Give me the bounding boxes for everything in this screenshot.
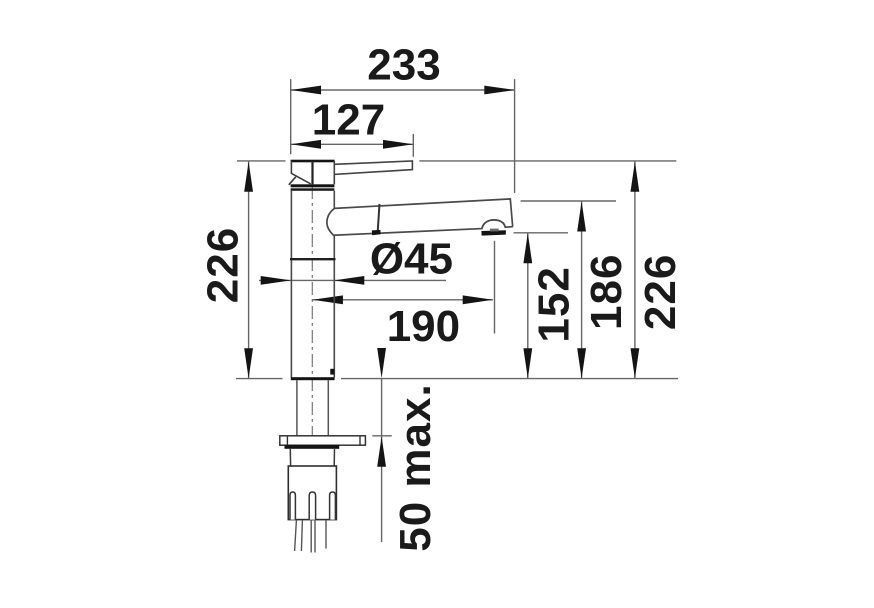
svg-text:127: 127 (312, 95, 385, 144)
svg-text:226: 226 (636, 254, 685, 330)
svg-text:233: 233 (367, 41, 440, 90)
svg-text:50 max.: 50 max. (391, 383, 440, 551)
svg-text:190: 190 (387, 302, 460, 351)
svg-text:152: 152 (530, 266, 579, 342)
svg-text:Ø45: Ø45 (370, 235, 453, 284)
svg-text:186: 186 (582, 254, 631, 330)
svg-text:226: 226 (199, 227, 248, 303)
